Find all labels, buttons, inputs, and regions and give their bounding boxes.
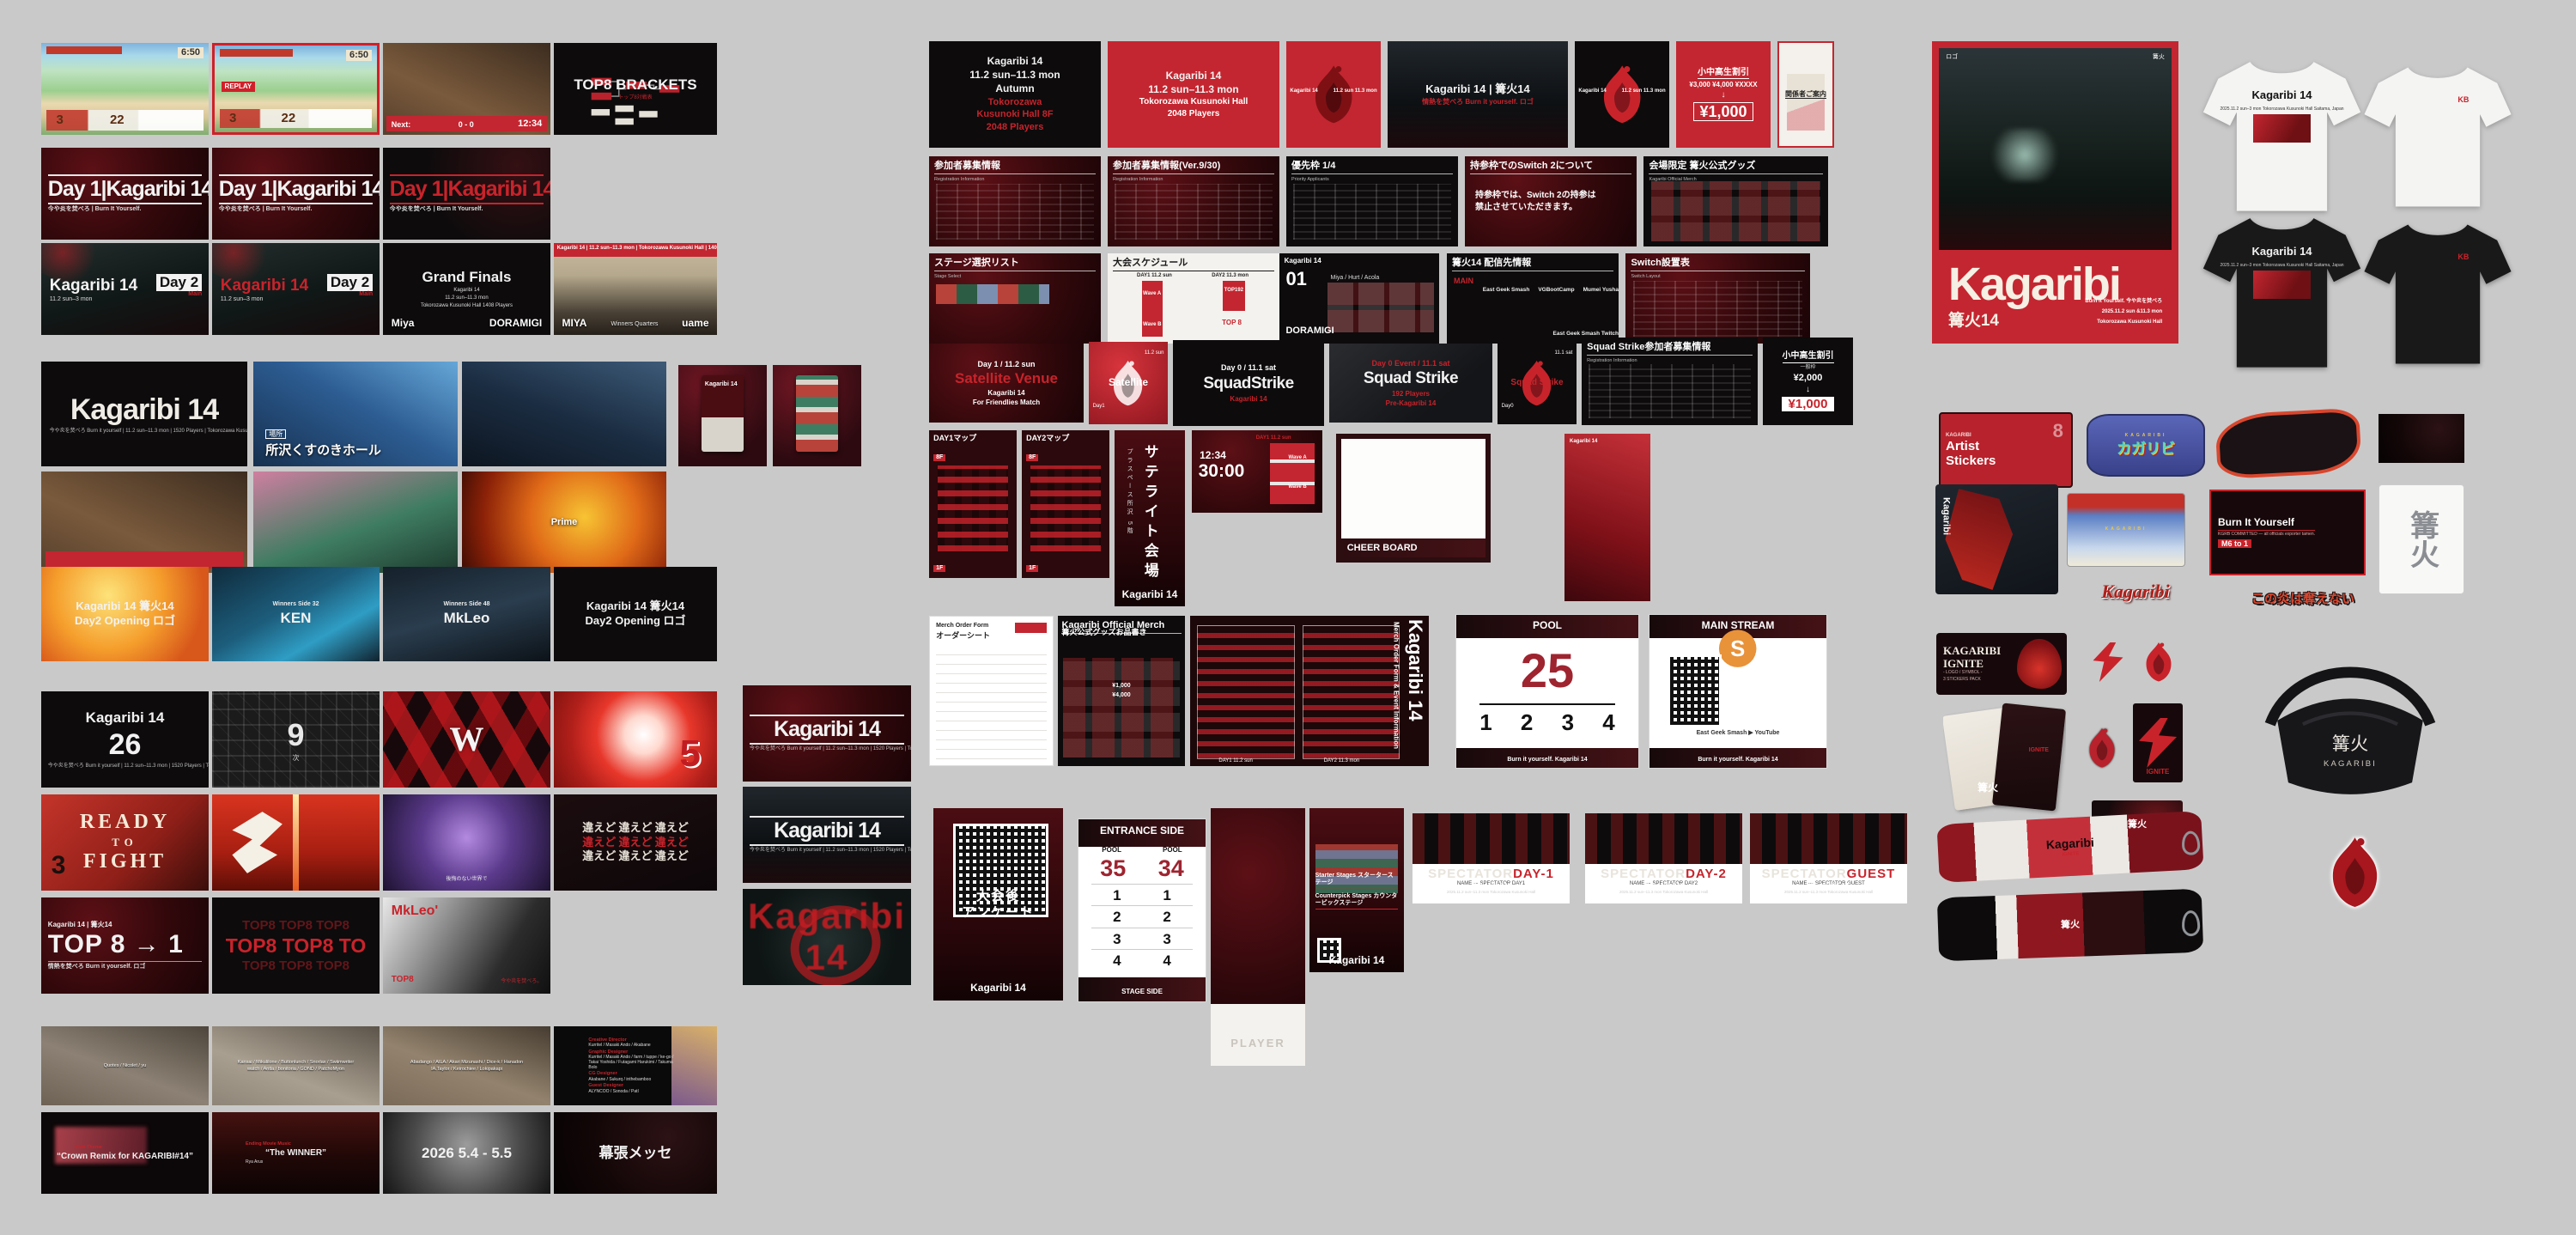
kagaribi-thumb-red-text-0: Kagaribi 14: [750, 715, 904, 745]
priority-slots-slide[interactable]: 優先枠 1/4Priority Applicants: [1286, 156, 1458, 246]
credits-list[interactable]: Creative DirectorKurritel / Masaki Ando …: [554, 1026, 717, 1105]
registration-info-v930-slide-text-0: 参加者募集情報(Ver.9/30): [1113, 161, 1274, 174]
main-poster-text-6: Tokorozawa Kusunoki Hall: [2097, 319, 2162, 325]
graffiti-sticker[interactable]: [2213, 407, 2363, 480]
entrance-side-sign-text-5: 3 3: [1091, 928, 1193, 948]
artist-stickers-card-text-3: 8: [2053, 420, 2063, 441]
squadstrike-day0-card-text-0: Day 0 / 11.1 sat: [1221, 363, 1276, 372]
banner-dark-wide[interactable]: Kagaribi 14 | 篝火14情熱を焚べろ Burn it yoursel…: [1388, 41, 1568, 148]
credits-list-text-6: Guest Designer: [588, 1083, 682, 1088]
countdown-26-slide[interactable]: Kagaribi 1426今や炎を焚べろ Burn it yourself | …: [41, 691, 209, 788]
squadstrike-banner[interactable]: Day 0 Event / 11.1 satSquad Strike192 Pl…: [1329, 344, 1492, 423]
kagaribi-thumb-arena-text-0: Kagaribi 14: [750, 816, 904, 846]
tshirt-black-front[interactable]: Kagaribi 142025.11.2 sun–3 mon Tokorozaw…: [2198, 199, 2366, 378]
flame-card-dark-text-1: 11.2 sun 11.3 mon: [1622, 88, 1666, 94]
entrance-side-sign-text-4: 2 2: [1091, 905, 1193, 926]
kagaribi-thumb-red[interactable]: Kagaribi 14今や炎を焚べろ Burn it yourself | 11…: [743, 685, 911, 782]
teaser-2026-frame[interactable]: 2026 5.4 - 5.5: [383, 1112, 550, 1194]
tshirt-black-back-text-0: KB: [2458, 252, 2469, 261]
squadstrike-banner-text-3: Pre-Kagaribi 14: [1386, 399, 1437, 407]
kono-honoo-sticker[interactable]: この炎は奪えない: [2221, 578, 2385, 621]
flame-card-red[interactable]: Kagaribi 1411.2 sun 11.3 mon: [1286, 41, 1381, 148]
kagaribi-thumb-arena-text-1: 今や炎を焚べろ Burn it yourself | 11.2 sun–11.3…: [750, 848, 904, 854]
satellite-venue-poster-text-2: Kagaribi 14: [1115, 589, 1185, 601]
winners-quarters-photo-text-0: Kagaribi 14 | 11.2 sun–11.3 mon | Tokoro…: [557, 246, 714, 252]
flame-card-dark-text-0: Kagaribi 14: [1578, 88, 1606, 94]
lanyard-red-text-1: IGNITE: [2062, 851, 2079, 858]
spectator-guest-badge[interactable]: SPECTATORGUEST#Kagaribi 142025.11.2 sun–…: [1750, 813, 1907, 903]
official-merch-slide-text-0: 会場限定 篝火公式グッズ: [1649, 161, 1822, 174]
event-pass-photo-front[interactable]: Kagaribi 14: [678, 365, 767, 466]
katakana-sticker[interactable]: KAGARIBIカガリビ: [2087, 414, 2205, 477]
arena-photo-sticker[interactable]: [2379, 414, 2464, 463]
crown-remix-credit[interactable]: Main Theme“Crown Remix for KAGARIBI#14”: [41, 1112, 209, 1194]
pool-sign-text-2: 1 2 3 4: [1479, 703, 1615, 736]
top8-pattern-slide-text-1: TOP8 TOP8 TO: [226, 934, 367, 957]
poster-red-text-0: Kagaribi 14: [1166, 70, 1222, 82]
top8-to-1-slide-text-2: 情熱を焚べろ Burn it yourself. ロゴ: [48, 961, 202, 970]
flame-dark-icon: [1303, 54, 1364, 135]
katakana-sticker-text-0: KAGARIBI: [2125, 434, 2167, 439]
fire-silhouette-frame[interactable]: Prime: [462, 471, 666, 573]
satellite-square-text-1: Day1: [1093, 404, 1105, 410]
shirt-icon: [2198, 43, 2366, 222]
streams-info-slide-text-4: Mumei Yusha: [1583, 287, 1619, 293]
credits-photo-3[interactable]: Abadango / AILA / Akari Mizunashi / Dice…: [383, 1026, 550, 1105]
players-grid-slide-text-0: Kagaribi 14: [1285, 257, 1321, 265]
switch-layout-slide-text-0: Switch設置表: [1631, 258, 1804, 271]
schedule-slide-text-6: TOP 8: [1222, 319, 1242, 326]
student-discount-dark-text-1: 一般枠: [1800, 365, 1815, 371]
priority-slots-slide-text-0: 優先枠 1/4: [1291, 161, 1453, 174]
day1-slide-red-b[interactable]: Day 1|Kagaribi 14今や炎を焚べろ | Burn It Yours…: [212, 148, 380, 240]
smash-screenshot-1-text-0: 6:50: [178, 47, 204, 58]
schedule-slide-text-2: DAY2 11.3 mon: [1212, 273, 1249, 279]
countdown-9-slide-text-0: 9: [287, 717, 304, 752]
smash-screenshot-replay[interactable]: 6:50REPLAY322: [212, 43, 380, 135]
credits-list-text-7: ALYNCOO / Sonoda / Patl: [588, 1090, 682, 1095]
ignite-sticker-stack-text-1: IGNITE: [2029, 747, 2049, 754]
streams-info-slide-text-0: 篝火14 配信先情報: [1452, 258, 1613, 271]
mkleo-top8-slide-text-2: 今や炎を焚べろ。: [501, 979, 542, 985]
winners-quarters-photo-text-3: uame: [682, 318, 708, 330]
kono-honoo-sticker-text-0: この炎は奪えない: [2251, 592, 2354, 606]
tshirt-black-front-text-0: Kagaribi 14: [2198, 246, 2366, 259]
day2-slide-a-text-2: Day 2: [156, 274, 202, 291]
main-stream-sign[interactable]: MAIN STREAMEast Geek Smash ▶ YouTubeBurn…: [1649, 614, 1827, 769]
day1-slide-black-text-0: Day 1|Kagaribi 14: [390, 174, 544, 204]
countdown-26-slide-text-1: 26: [109, 728, 142, 762]
survey-qr-card[interactable]: Kagaribi 14大会後アンケート: [933, 808, 1063, 1001]
squadstrike-day0-card[interactable]: Day 0 / 11.1 satSquadStrikeKagaribi 14: [1173, 340, 1324, 426]
cheer-board[interactable]: CHEER BOARD: [1336, 434, 1491, 563]
mkleo-frame[interactable]: Winners Side 48MkLeo: [383, 567, 550, 661]
flame-card-red-text-0: Kagaribi 14: [1290, 88, 1317, 94]
registration-info-slide-text-1: Registration Information: [934, 177, 1096, 182]
commentators-frame-text-0: Next:: [392, 120, 411, 129]
design-asset-board: 6:503226:50REPLAY322Next:0 - 012:34TOP8 …: [0, 0, 2576, 1235]
student-discount-red-text-3: ¥1,000: [1693, 102, 1753, 122]
schedule-slide-text-5: TOP192: [1224, 288, 1243, 294]
tshirt-black-front-text-1: 2025.11.2 sun–3 mon Tokorozawa Kusunoki …: [2198, 264, 2366, 269]
tshirt-white-front-text-0: Kagaribi 14: [2198, 89, 2366, 102]
day1-slide-red-a-text-0: Day 1|Kagaribi 14: [48, 174, 202, 204]
pool-sign-text-1: 25: [1521, 643, 1574, 698]
schedule-slide-text-0: 大会スケジュール: [1113, 258, 1274, 271]
stage-select-slide-text-1: Stage Select: [934, 274, 1096, 279]
day2-opening-fire[interactable]: Kagaribi 14 篝火14Day2 Opening ロゴ: [41, 567, 209, 661]
winner-credit[interactable]: Ending Movie Music“The WINNER”Rya Arus: [212, 1112, 380, 1194]
day2-slide-a-text-1: 11.2 sun–3 mon: [50, 296, 93, 303]
winners-quarters-photo-text-2: Winners Quarters: [611, 321, 659, 328]
ignite-mini-card[interactable]: IGNITE: [2133, 703, 2183, 782]
kagaribi-thumb-arena[interactable]: Kagaribi 14今や炎を焚べろ Burn it yourself | 11…: [743, 787, 911, 883]
event-pass-photo-back[interactable]: [773, 365, 861, 466]
main-poster-text-0: ロゴ: [1946, 54, 1958, 61]
winners-quarters-photo[interactable]: Kagaribi 14 | 11.2 sun–11.3 mon | Tokoro…: [554, 243, 717, 335]
streams-info-slide[interactable]: 篝火14 配信先情報MAINEast Geek SmashVGBootCampM…: [1447, 253, 1619, 344]
ken-frame[interactable]: Winners Side 32KEN: [212, 567, 380, 661]
banner-dark-wide-text-0: Kagaribi 14 | 篝火14: [1425, 83, 1529, 96]
switch2-notice-slide-text-0: 持参枠でのSwitch 2について: [1470, 161, 1631, 174]
countdown-26-slide-text-0: Kagaribi 14: [86, 709, 165, 727]
ignite-bolt-logo[interactable]: [2088, 631, 2128, 693]
kagaribi-thumb-grunge[interactable]: Kagaribi 14: [743, 889, 911, 985]
grand-finals-slide-text-0: Grand Finals: [422, 269, 512, 286]
day2-opening-fire-text-1: Day2 Opening ロゴ: [75, 615, 175, 628]
spectator-day2-badge-text-0: SPECTATOR: [1601, 867, 1686, 881]
burn-it-yourself-ticket-sticker-text-1: KGRB COMMITTED — all officials exporter …: [2218, 530, 2315, 538]
merch-order-form[interactable]: Merch Order Formオーダーシート: [929, 616, 1054, 766]
players-grid-slide-text-1: 01: [1285, 268, 1306, 289]
credits-photo-2-text-1: watch / Antla / bonitoria / GOND / Patch…: [217, 1067, 374, 1072]
player-pass-card[interactable]: Kagaribi 14篝火2025.11.2 sun–11.3 monTokor…: [1211, 808, 1305, 1066]
countdown-26-slide-text-2: 今や炎を焚べろ Burn it yourself | 11.2 sun–11.3…: [48, 764, 202, 770]
day1-slide-red-a[interactable]: Day 1|Kagaribi 14今や炎を焚べろ | Burn It Yours…: [41, 148, 209, 240]
stages-rule-card-text-0: Starter Stages スターターステージ: [1315, 871, 1399, 889]
schedule-slide[interactable]: 大会スケジュールDAY1 11.2 sunDAY2 11.3 monWave A…: [1108, 253, 1279, 344]
players-grid-slide[interactable]: Kagaribi 1401DORAMIGIMiya / Hurt / Acola: [1279, 253, 1439, 344]
ignite-sticker-stack[interactable]: 篝火IGNITE: [1943, 702, 2066, 815]
credits-list-text-4: CG Designer: [588, 1071, 682, 1076]
mkleo-top8-slide-text-0: MkLeo': [392, 903, 438, 919]
makuhari-teaser-frame[interactable]: 幕張メッセ: [554, 1112, 717, 1194]
pool-sign-text-0: POOL: [1533, 618, 1562, 634]
satellite-square-text-2: 11.2 sun: [1145, 350, 1164, 356]
entrance-side-sign-text-7: STAGE SIDE: [1078, 988, 1206, 995]
shirt-icon: [2360, 204, 2516, 376]
staff-guide-card-text-0: 関係者ご案内: [1785, 90, 1826, 99]
main-stream-sign-text-0: MAIN STREAM: [1702, 618, 1775, 634]
makuhari-teaser-frame-text-0: 幕張メッセ: [599, 1145, 672, 1162]
poster-red-text-2: Tokorozawa Kusunoki Hall: [1139, 97, 1249, 107]
flame-red-icon: [2138, 627, 2179, 697]
credits-photo-3-text-1: IA.Taylor / Keirochiee / Lokipakapi: [388, 1067, 545, 1072]
crowd-photo[interactable]: [41, 471, 247, 573]
collage-sticker[interactable]: Kagaribi: [1935, 484, 2058, 594]
day2-slide-b-text-1: 11.2 sun–3 mon: [221, 296, 264, 303]
ignite-pack-card-text-2: - LOGO / SYMBOL -: [1943, 671, 1982, 676]
blackletter-sticker-text-0: Kagaribi: [2101, 581, 2169, 602]
event-pass-photo-front-text-0: Kagaribi 14: [705, 381, 738, 388]
anime-frame-green[interactable]: [253, 471, 458, 573]
ken-frame-text-1: KEN: [281, 610, 312, 627]
countdown-9-slide-text-1: 次: [293, 754, 300, 762]
registration-info-v930-slide-text-1: Registration Information: [1113, 177, 1274, 182]
poster-autumn-black[interactable]: Kagaribi 1411.2 sun–11.3 monAutumnTokoro…: [929, 41, 1101, 148]
event-info-maps-text-2: DAY1 11.2 sun: [1218, 758, 1252, 764]
vertical-video-thumb-text-0: Kagaribi 14: [1570, 439, 1597, 445]
day2-opening-black[interactable]: Kagaribi 14 篝火14Day2 Opening ロゴ: [554, 567, 717, 661]
smash-screenshot-replay-text-2: 3: [229, 111, 236, 125]
players-grid-slide-text-3: Miya / Hurt / Acola: [1331, 275, 1435, 282]
squadstrike-square-text-1: Day0: [1502, 404, 1514, 410]
poster-autumn-black-text-3: Tokorozawa: [988, 97, 1042, 108]
flame-card-dark[interactable]: Kagaribi 1411.2 sun 11.3 mon: [1575, 41, 1669, 148]
streams-info-slide-text-5: East Geek Smash Twitch: [1553, 331, 1619, 337]
ignite-pack-card-text-1: IGNITE: [1943, 658, 1984, 669]
grand-finals-slide-text-3: Tokorozawa Kusunoki Hall 1408 Players: [421, 303, 513, 309]
top8-pattern-slide[interactable]: TOP8 TOP8 TOP8TOP8 TOP8 TOTOP8 TOP8 TOP8: [212, 897, 380, 994]
event-info-maps[interactable]: Kagaribi 14Merch Order Form & Event Info…: [1190, 616, 1429, 766]
day2-opening-fire-text-0: Kagaribi 14 篝火14: [76, 600, 173, 613]
tshirt-white-back[interactable]: KB: [2360, 47, 2516, 219]
poster-autumn-black-text-2: Autumn: [995, 83, 1034, 95]
artist-stickers-card-text-2: Stickers: [1946, 454, 1996, 467]
vertical-video-thumb[interactable]: Kagaribi 14: [1564, 434, 1650, 601]
anime-frame-sword[interactable]: [462, 362, 666, 466]
squadstrike-banner-text-2: 192 Players: [1392, 390, 1430, 398]
ignite-pack-card-text-3: 3 STICKERS PACK: [1943, 678, 1981, 683]
stages-rule-card-text-2: Kagaribi 14: [1309, 955, 1404, 967]
gradient-calligraphy-sticker-text-0: KAGARIBI: [2105, 527, 2148, 532]
stage-select-slide-text-0: ステージ選択リスト: [934, 258, 1096, 271]
credits-photo-3-text-0: Abadango / AILA / Akari Mizunashi / Dice…: [388, 1060, 545, 1065]
squadstrike-registration-slide[interactable]: Squad Strike参加者募集情報Registration Informat…: [1582, 338, 1758, 425]
flame-outline-icon: [2081, 709, 2123, 788]
survey-qr-card-text-0: Kagaribi 14: [933, 983, 1063, 995]
main-poster[interactable]: ロゴ篝火Kagaribi篝火14Burn it Yourself. 今や炎を焚べ…: [1932, 41, 2178, 344]
merch-order-form-text-1: オーダーシート: [936, 631, 990, 640]
credits-list-text-3: Kurritel / Masaki Ando / farm / tuppe / …: [588, 1056, 682, 1070]
registration-info-slide[interactable]: 参加者募集情報Registration Information: [929, 156, 1101, 246]
smash-screenshot-replay-text-0: 6:50: [346, 50, 372, 61]
merch-menu-slide[interactable]: Kagaribi Official Merch篝火公式グッズお品書き¥1,000…: [1058, 616, 1185, 766]
day2-slide-b-text-2: Day 2: [327, 274, 373, 291]
entrance-side-sign-text-2: 35 34: [1100, 855, 1184, 882]
credits-list-text-0: Creative Director: [588, 1037, 682, 1043]
waist-bag[interactable]: [2223, 630, 2477, 812]
ignite-pack-card-text-0: KAGARIBI: [1943, 645, 2001, 656]
spectator-day1-badge-text-1: DAY-1: [1513, 867, 1554, 881]
satellite-venue-banner-text-0: Day 1 / 11.2 sun: [977, 360, 1035, 368]
day2-slide-b[interactable]: Kagaribi 1411.2 sun–3 monDay 2Main: [212, 243, 380, 335]
lanyard-black-text-0: 篝火: [2061, 919, 2080, 930]
squadstrike-banner-text-1: Squad Strike: [1364, 369, 1458, 388]
timer-schedule-screen[interactable]: 12:3430:00DAY1 11.2 sunWave AWave B: [1192, 430, 1322, 513]
student-discount-dark[interactable]: 小中高生割引一般枠¥2,000↓¥1,000: [1763, 338, 1853, 425]
day2-venue-map-text-1: 8F: [1026, 454, 1038, 461]
squadstrike-registration-slide-text-0: Squad Strike参加者募集情報: [1587, 342, 1753, 356]
official-merch-slide-text-1: Kagaribi Official Merch: [1649, 177, 1822, 182]
poster-red-text-3: 2048 Players: [1168, 109, 1220, 119]
w-emblem-slide[interactable]: W: [383, 691, 550, 788]
entrance-side-sign-text-6: 4 4: [1091, 949, 1193, 970]
top8-brackets-slide-text-0: TOP8 BRACKETS: [574, 76, 696, 94]
chigaedo-pattern-slide-text-1: 違えど 違えど 違えど: [582, 837, 689, 849]
spectator-guest-badge-text-3: 2025.11.2 sun–11.3 mon Tokorozawa Kusuno…: [1750, 890, 1907, 894]
student-discount-red-text-2: ↓: [1722, 90, 1726, 100]
smash-screenshot-1[interactable]: 6:50322: [41, 43, 209, 135]
anime-frame-venue[interactable]: 場所所沢くすのきホール: [253, 362, 458, 466]
kagaribi-thumb-grunge-text-0: Kagaribi 14: [743, 896, 911, 979]
entrance-side-sign-text-1: POOL POOL: [1102, 846, 1182, 854]
squadstrike-day0-card-text-1: SquadStrike: [1203, 374, 1293, 393]
credits-photo-1[interactable]: Quotes / Nicolet / yu: [41, 1026, 209, 1105]
teaser-2026-frame-text-0: 2026 5.4 - 5.5: [422, 1145, 512, 1162]
artist-stickers-card-text-1: Artist: [1946, 440, 1979, 453]
ready-to-fight-slide[interactable]: READYTOFIGHT3: [41, 794, 209, 891]
priority-slots-slide-text-1: Priority Applicants: [1291, 177, 1453, 182]
day2-opening-black-text-0: Kagaribi 14 篝火14: [586, 600, 684, 613]
switch2-notice-slide[interactable]: 持参枠でのSwitch 2について持参枠では、Switch 2の持参は禁止させて…: [1465, 156, 1637, 246]
tshirt-white-front[interactable]: Kagaribi 142025.11.2 sun–3 mon Tokorozaw…: [2198, 43, 2366, 222]
burn-it-yourself-ticket-sticker-text-0: Burn It Yourself: [2218, 517, 2294, 529]
pool-sign[interactable]: POOL251 2 3 4Burn it yourself. Kagaribi …: [1455, 614, 1639, 769]
squadstrike-square[interactable]: Squad StrikeDay011.1 sat: [1498, 342, 1577, 424]
satellite-square-text-0: Satellite: [1109, 377, 1148, 389]
poster-red[interactable]: Kagaribi 1411.2 sun–11.3 monTokorozawa K…: [1108, 41, 1279, 148]
grand-finals-slide[interactable]: Grand FinalsKagaribi 1411.2 sun–11.3 mon…: [383, 243, 550, 335]
merch-order-form-text-0: Merch Order Form: [936, 623, 988, 630]
flame-sticker-big[interactable]: [2318, 803, 2391, 942]
burn-it-yourself-ticket-sticker-text-2: M6 to 1: [2218, 539, 2251, 548]
katakana-sticker-text-1: カガリビ: [2117, 441, 2175, 458]
student-discount-dark-text-3: ↓: [1806, 385, 1810, 395]
winner-credit-text-0: Ending Movie Music: [246, 1141, 346, 1147]
switch2-notice-slide-text-2: 禁止させていただきます。: [1475, 203, 1626, 213]
kagaribi-banner-black-text-1: 今や炎を焚べろ Burn it yourself | 11.2 sun–11.3…: [50, 429, 240, 435]
stage-select-slide[interactable]: ステージ選択リストStage Select: [929, 253, 1101, 344]
ignite-pack-card[interactable]: KAGARIBIIGNITE- LOGO / SYMBOL -3 STICKER…: [1936, 633, 2067, 695]
purple-scene-frame[interactable]: 後悔のない世界で: [383, 794, 550, 891]
kanji-art-slide[interactable]: [212, 794, 380, 891]
spectator-day1-badge[interactable]: SPECTATORDAY-1#Kagaribi 142025.11.2 sun–…: [1413, 813, 1570, 903]
stages-rule-card[interactable]: Starter Stages スターターステージCounterpick Stag…: [1309, 808, 1404, 972]
timer-schedule-screen-text-2: DAY1 11.2 sun: [1256, 435, 1291, 441]
top8-to-1-slide-text-0: Kagaribi 14 | 篝火14: [48, 921, 202, 928]
staff-guide-card[interactable]: 関係者ご案内: [1777, 41, 1834, 148]
main-stream-sign-text-1: East Geek Smash ▶ YouTube: [1649, 730, 1826, 737]
official-merch-slide[interactable]: 会場限定 篝火公式グッズKagaribi Official Merch: [1643, 156, 1828, 246]
kanji-calligraphy-sticker[interactable]: 篝火: [2379, 484, 2464, 594]
commentators-frame-text-2: 12:34: [518, 119, 542, 130]
student-discount-red[interactable]: 小中高生割引¥3,000 ¥4,000 ¥XXXX↓¥1,000: [1676, 41, 1771, 148]
squadstrike-square-text-2: 11.1 sat: [1555, 350, 1573, 356]
top8-pattern-slide-text-2: TOP8 TOP8 TOP8: [242, 958, 349, 973]
chigaedo-pattern-slide-text-0: 違えど 違えど 違えど: [582, 822, 689, 835]
mkleo-top8-slide-text-1: TOP8: [392, 975, 414, 985]
spectator-day2-badge[interactable]: SPECTATORDAY-2#Kagaribi 142025.11.2 sun–…: [1585, 813, 1742, 903]
kagaribi-banner-black[interactable]: Kagaribi 14今や炎を焚べろ Burn it yourself | 11…: [41, 362, 247, 466]
satellite-square[interactable]: SatelliteDay111.2 sun: [1089, 342, 1168, 424]
day1-slide-red-b-text-1: 今や炎を焚べろ | Burn It Yourself.: [219, 206, 373, 213]
satellite-venue-poster[interactable]: サテライト会場プラスペース所沢 5階Kagaribi 14: [1115, 430, 1185, 606]
winners-quarters-photo-text-1: MIYA: [562, 318, 587, 330]
explosion-5-slide[interactable]: 5: [554, 691, 717, 788]
countdown-9-slide[interactable]: 9次: [212, 691, 380, 788]
day1-slide-red-b-text-0: Day 1|Kagaribi 14: [219, 174, 373, 204]
qr-code-icon: [1668, 654, 1722, 727]
day2-slide-b-text-0: Kagaribi 14: [221, 277, 308, 295]
smash-screenshot-replay-text-3: 22: [281, 111, 295, 125]
top8-brackets-slide[interactable]: TOP8 BRACKETSトップ8対戦表: [554, 43, 717, 135]
smash-screenshot-1-text-2: 22: [110, 113, 125, 127]
day1-venue-map[interactable]: DAY1マップ8F1F: [929, 430, 1017, 578]
day2-slide-b-text-3: Main: [359, 291, 373, 298]
chigaedo-pattern-slide-text-2: 違えど 違えど 違えど: [582, 850, 689, 863]
chigaedo-pattern-slide[interactable]: 違えど 違えど 違えど違えど 違えど 違えど違えど 違えど 違えど: [554, 794, 717, 891]
ignite-mini-card-text-0: IGNITE: [2133, 768, 2183, 776]
flame-diecut-sticker[interactable]: [2081, 709, 2123, 788]
ignite-flame-logo[interactable]: [2138, 627, 2179, 697]
mkleo-top8-slide[interactable]: MkLeo'TOP8今や炎を焚べろ。: [383, 897, 550, 994]
switch-layout-slide[interactable]: Switch設置表Switch Layout: [1625, 253, 1810, 344]
credits-photo-2-text-0: Kansai / Mikulilone / Buttonlunch / Snor…: [217, 1060, 374, 1065]
day1-slide-black[interactable]: Day 1|Kagaribi 14今や炎を焚べろ | Burn It Yours…: [383, 148, 550, 240]
switch-layout-slide-text-1: Switch Layout: [1631, 274, 1804, 279]
winner-credit-text-2: Rya Arus: [246, 1160, 346, 1165]
day2-venue-map[interactable]: DAY2マップ8F1F: [1022, 430, 1109, 578]
satellite-venue-banner-text-1: Satellite Venue: [955, 370, 1058, 387]
credits-photo-2[interactable]: Kansai / Mikulilone / Buttonlunch / Snor…: [212, 1026, 380, 1105]
artist-stickers-card[interactable]: KAGARIBIArtistStickers8: [1939, 412, 2073, 488]
blackletter-sticker[interactable]: Kagaribi: [2066, 572, 2205, 611]
cheer-board-text-0: CHEER BOARD: [1347, 543, 1418, 554]
survey-qr-card-text-2: アンケート: [962, 905, 1034, 920]
tshirt-black-back[interactable]: KB: [2360, 204, 2516, 376]
registration-info-v930-slide[interactable]: 参加者募集情報(Ver.9/30)Registration Informatio…: [1108, 156, 1279, 246]
main-poster-text-1: 篝火: [2153, 54, 2165, 61]
entrance-side-sign-text-3: 1 1: [1091, 884, 1193, 904]
lanyard-black[interactable]: 篝火: [1937, 889, 2203, 962]
top8-to-1-slide[interactable]: Kagaribi 14 | 篝火14TOP 8 → 1情熱を焚べろ Burn i…: [41, 897, 209, 994]
satellite-venue-banner[interactable]: Day 1 / 11.2 sunSatellite VenueKagaribi …: [929, 344, 1084, 423]
spectator-day2-badge-text-1: DAY-2: [1686, 867, 1727, 881]
lanyard-red[interactable]: KagaribiIGNITE: [1936, 811, 2203, 883]
event-info-maps-text-0: Kagaribi 14: [1405, 619, 1426, 721]
top8-to-1-slide-text-1: TOP 8 → 1: [48, 930, 202, 960]
entrance-side-sign[interactable]: ENTRANCE SIDEPOOL POOL35 341 12 23 34 4S…: [1078, 818, 1206, 1002]
day1-slide-red-a-text-1: 今や炎を焚べろ | Burn It Yourself.: [48, 206, 202, 213]
top8-brackets-slide-text-1: トップ8対戦表: [618, 95, 652, 101]
squadstrike-day0-card-text-2: Kagaribi 14: [1230, 395, 1267, 403]
timer-schedule-screen-text-4: Wave B: [1288, 484, 1306, 490]
satellite-venue-banner-text-3: For Friendlies Match: [973, 398, 1040, 406]
player-pass-card-text-5: PLAYER: [1211, 1037, 1305, 1050]
student-discount-red-text-1: ¥3,000 ¥4,000 ¥XXXX: [1689, 81, 1757, 88]
gradient-calligraphy-sticker[interactable]: KAGARIBI: [2067, 493, 2185, 567]
day2-slide-a[interactable]: Kagaribi 1411.2 sun–3 monDay 2Main: [41, 243, 209, 335]
pool-sign-text-3: Burn it yourself. Kagaribi 14: [1456, 757, 1638, 764]
ready-to-fight-slide-text-2: FIGHT: [83, 850, 167, 874]
top8-pattern-slide-text-0: TOP8 TOP8 TOP8: [242, 918, 349, 933]
burn-it-yourself-ticket-sticker[interactable]: Burn It YourselfKGRB COMMITTED — all off…: [2209, 490, 2366, 575]
ready-to-fight-slide-text-1: TO: [112, 837, 138, 849]
day1-venue-map-text-0: DAY1マップ: [933, 434, 976, 442]
smash-screenshot-replay-text-1: REPLAY: [222, 82, 256, 91]
commentators-frame[interactable]: Next:0 - 012:34: [383, 43, 550, 135]
